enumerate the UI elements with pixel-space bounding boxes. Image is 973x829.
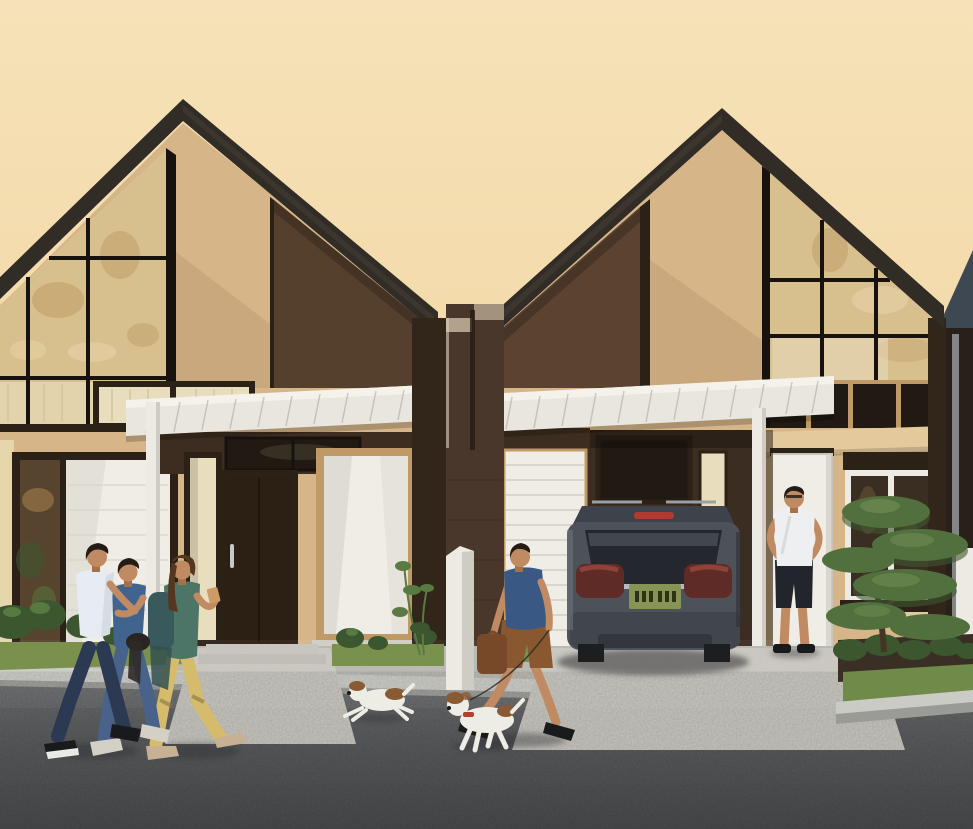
suv (557, 502, 749, 675)
glasses (786, 495, 802, 498)
brake-light (634, 512, 674, 519)
dog-collar (463, 712, 474, 717)
front-door (220, 470, 298, 648)
shuttered-window (312, 448, 420, 650)
bag (477, 634, 507, 674)
scene-illustration (0, 0, 973, 829)
door-handle (230, 544, 234, 568)
rendering-canvas (0, 0, 973, 829)
garden-bed-right (833, 634, 973, 724)
